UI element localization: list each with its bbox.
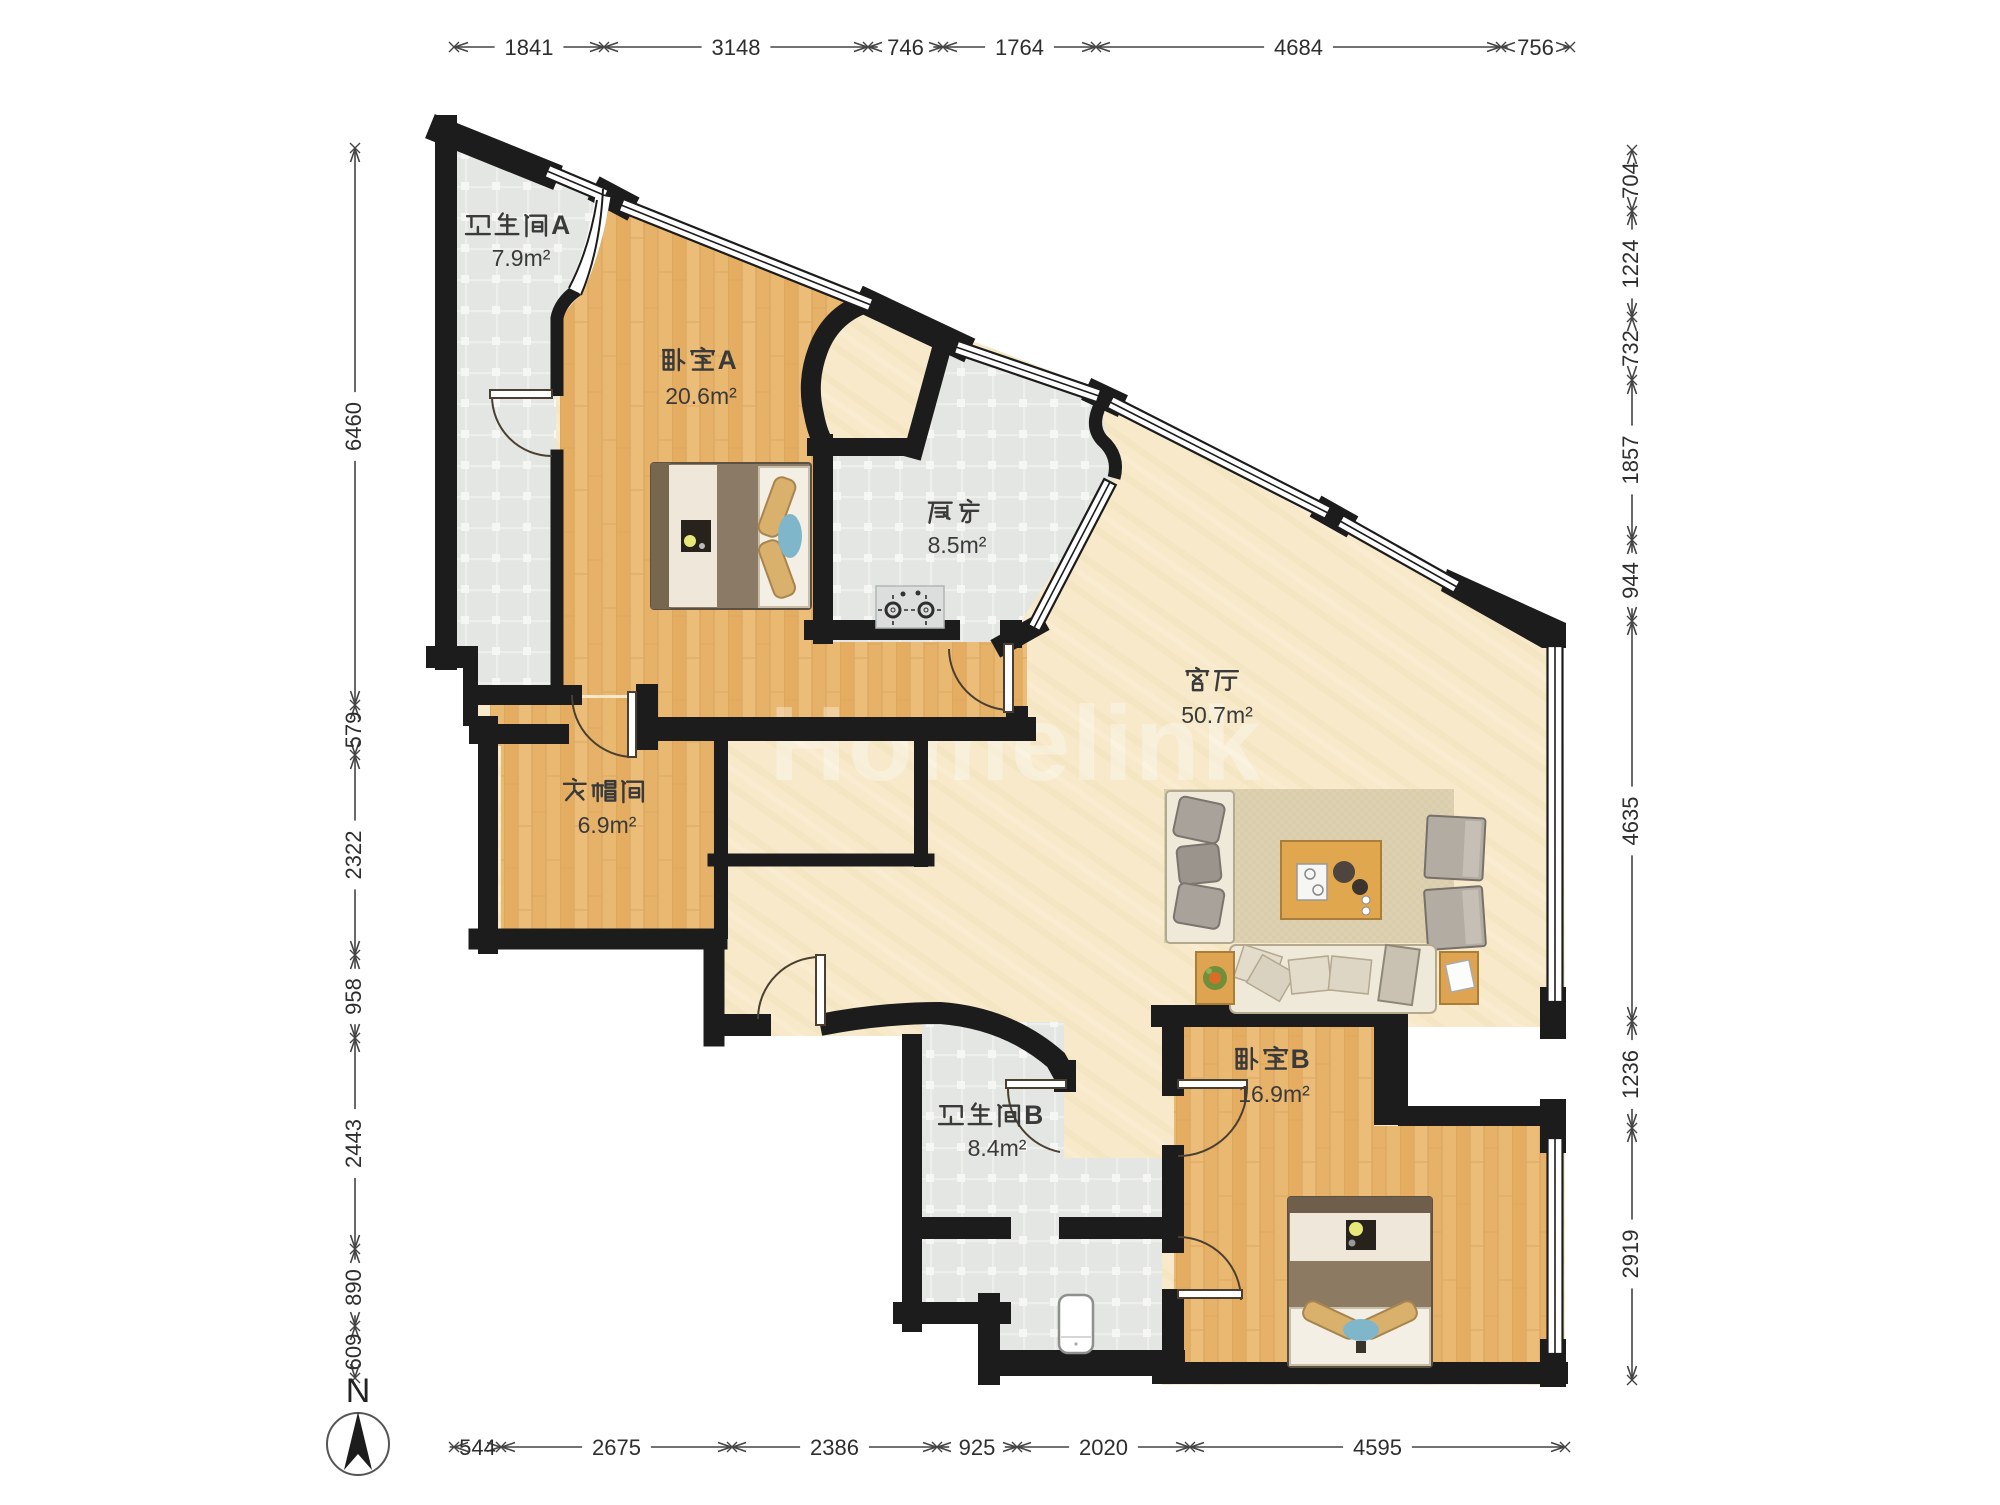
svg-text:746: 746 <box>887 35 924 60</box>
svg-text:6.9m²: 6.9m² <box>578 812 637 838</box>
svg-text:2020: 2020 <box>1079 1435 1128 1460</box>
svg-text:1764: 1764 <box>995 35 1044 60</box>
svg-text:2675: 2675 <box>592 1435 641 1460</box>
svg-text:1841: 1841 <box>505 35 554 60</box>
svg-text:958: 958 <box>341 978 366 1015</box>
svg-text:704: 704 <box>1618 162 1643 199</box>
svg-text:B: B <box>1024 1100 1043 1130</box>
svg-text:579: 579 <box>341 712 366 749</box>
svg-text:944: 944 <box>1618 562 1643 599</box>
svg-text:20.6m²: 20.6m² <box>665 383 737 409</box>
svg-text:4684: 4684 <box>1274 35 1323 60</box>
svg-text:1224: 1224 <box>1618 240 1643 289</box>
svg-text:B: B <box>1291 1044 1310 1074</box>
svg-text:890: 890 <box>341 1269 366 1306</box>
svg-text:1236: 1236 <box>1618 1050 1643 1099</box>
svg-text:2386: 2386 <box>810 1435 859 1460</box>
svg-text:N: N <box>346 1372 371 1410</box>
svg-text:7.9m²: 7.9m² <box>492 245 551 271</box>
svg-text:3148: 3148 <box>712 35 761 60</box>
svg-text:4635: 4635 <box>1618 797 1643 846</box>
svg-text:A: A <box>718 345 737 375</box>
svg-text:544: 544 <box>459 1435 496 1460</box>
svg-text:6460: 6460 <box>341 402 366 451</box>
svg-text:732: 732 <box>1618 330 1643 367</box>
svg-text:8.4m²: 8.4m² <box>968 1135 1027 1161</box>
svg-text:609: 609 <box>341 1334 366 1371</box>
svg-text:2443: 2443 <box>341 1119 366 1168</box>
svg-text:4595: 4595 <box>1353 1435 1402 1460</box>
svg-text:925: 925 <box>959 1435 996 1460</box>
svg-text:756: 756 <box>1517 35 1554 60</box>
svg-text:1857: 1857 <box>1618 436 1643 485</box>
svg-text:8.5m²: 8.5m² <box>928 532 987 558</box>
svg-text:2322: 2322 <box>341 831 366 880</box>
svg-text:2919: 2919 <box>1618 1230 1643 1279</box>
svg-text:16.9m²: 16.9m² <box>1238 1081 1310 1107</box>
svg-text:50.7m²: 50.7m² <box>1181 702 1253 728</box>
svg-text:A: A <box>551 210 570 240</box>
